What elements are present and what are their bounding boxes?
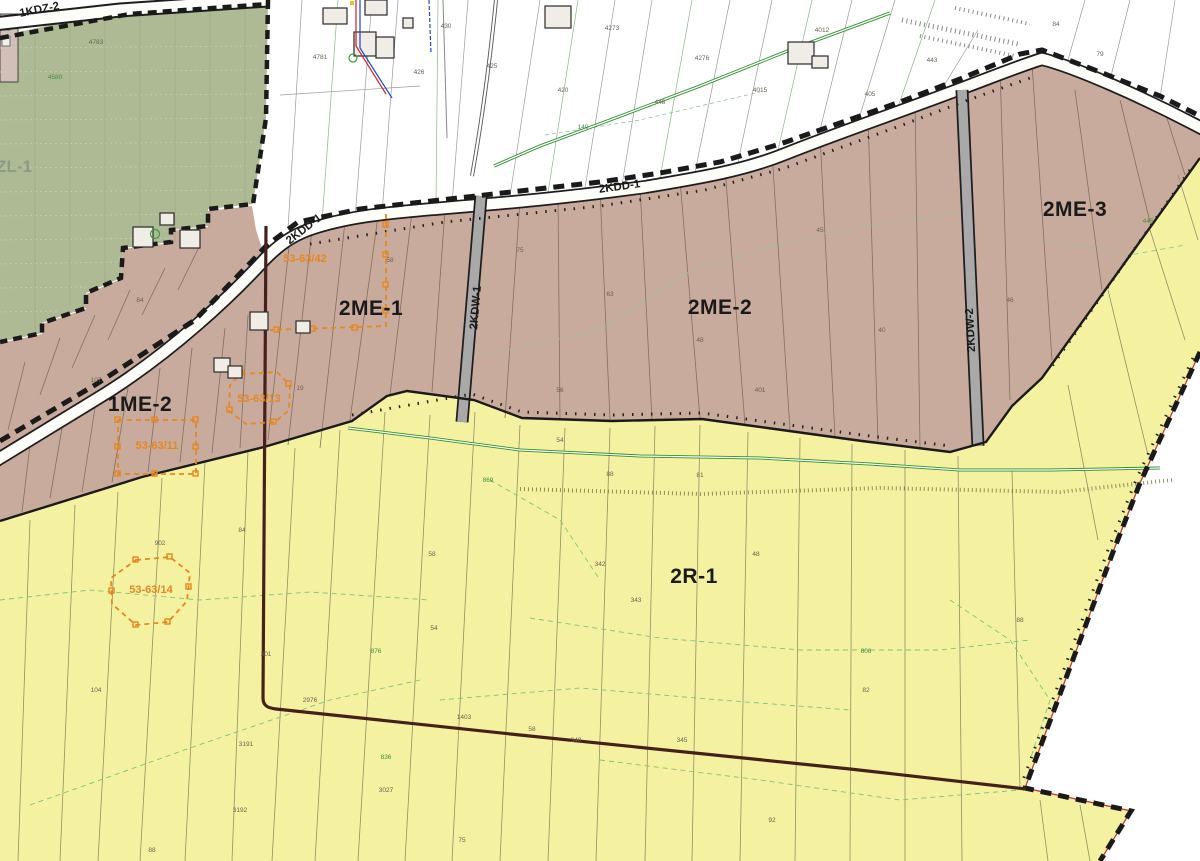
heritage-label-53-63-14: 53-63/14 [129, 584, 173, 596]
zoning-map-canvas: ZL-11ME-22ME-12ME-22ME-32R-11KDZ-22KDD-1… [0, 0, 1200, 861]
parcel-number: 48 [752, 551, 760, 558]
parcel-number: 107 [91, 377, 102, 384]
parcel-number: 445 [1143, 218, 1154, 225]
parcel-number: 340 [571, 737, 582, 744]
parcel-number: 405 [865, 91, 876, 98]
parcel-number: 84 [1052, 21, 1060, 28]
parcel-number: 3027 [379, 787, 394, 794]
parcel-number: 56 [556, 387, 564, 394]
parcel-number: 342 [595, 561, 606, 568]
parcel-number: 81 [696, 472, 704, 479]
parcel-number: 58 [428, 551, 436, 558]
parcel-number: 84 [238, 527, 246, 534]
parcel-number: 82 [862, 687, 870, 694]
parcel-number: 806 [861, 648, 872, 655]
tree-symbol [349, 54, 357, 62]
parcel-number: 88 [148, 847, 156, 854]
parcel-number: 1403 [457, 714, 472, 721]
parcel-number: 345 [677, 737, 688, 744]
parcel-number: 88 [1016, 617, 1024, 624]
parcel-number: 4273 [605, 25, 620, 32]
zone-label-2r-1: 2R-1 [670, 565, 718, 588]
parcel-number: 2976 [303, 697, 318, 704]
scarp-hatch [902, 8, 1030, 56]
parcel-number: 54 [430, 625, 438, 632]
parcel-number: 869 [483, 477, 494, 484]
parcel-number: 19 [296, 385, 304, 392]
parcel-number: 836 [381, 754, 392, 761]
parcel-number: 425 [487, 63, 498, 70]
parcel-number: 46 [1006, 297, 1014, 304]
heritage-label-53-63-42: 53-63/42 [283, 253, 326, 265]
parcel-number: 63 [606, 291, 614, 298]
parcel-number: 54 [556, 437, 564, 444]
parcel-number: 448 [655, 99, 666, 106]
parcel-number: 902 [155, 540, 166, 547]
parcel-number: 58 [386, 257, 394, 264]
parcel-number: 45 [816, 227, 824, 234]
parcel-number: 75 [516, 247, 524, 254]
heritage-label-53-63-13: 53-63/13 [237, 393, 280, 405]
parcel-number: 301 [261, 651, 272, 658]
parcel-number: 84 [136, 297, 144, 304]
parcel-number: 430 [441, 23, 452, 30]
zone-label-2me-1: 2ME-1 [339, 297, 403, 320]
parcel-number: 3192 [233, 807, 248, 814]
parcel-number: 443 [927, 57, 938, 64]
zoning-map: ZL-11ME-22ME-12ME-22ME-32R-11KDZ-22KDD-1… [0, 0, 1200, 861]
parcel-number: 48 [696, 337, 704, 344]
parcel-number: 4276 [695, 55, 710, 62]
parcel-number: 104 [91, 687, 102, 694]
zone-label-2me-2: 2ME-2 [688, 296, 752, 319]
zone-label-1me-2: 1ME-2 [108, 393, 172, 416]
utility-blue [429, 0, 431, 54]
parcel-number: 401 [755, 387, 766, 394]
parcel-number: 420 [558, 87, 569, 94]
utility-yellow-node [350, 1, 354, 5]
parcel-number: 140 [578, 124, 589, 131]
parcel-number: 79 [1096, 51, 1104, 58]
zone-label-zl-1: ZL-1 [0, 157, 32, 176]
parcel-number: 343 [631, 597, 642, 604]
parcel-number: 4580 [48, 74, 63, 81]
parcel-number: 58 [528, 726, 536, 733]
zone-label-2me-3: 2ME-3 [1043, 198, 1107, 221]
parcel-number: 876 [371, 648, 382, 655]
parcel-number: 4012 [815, 27, 830, 34]
heritage-label-53-63-11: 53-63/11 [136, 440, 179, 452]
parcel-number: 40 [878, 327, 886, 334]
parcel-number: 3191 [239, 741, 254, 748]
parcel-number: 4015 [753, 87, 768, 94]
parcel-number: 92 [768, 817, 776, 824]
road-label-2kdw-2: 2KDW-2 [964, 308, 978, 352]
parcel-number: 4781 [313, 54, 328, 61]
parcel-number: 88 [606, 471, 614, 478]
parcel-number: 4783 [89, 39, 104, 46]
parcel-number: 426 [414, 69, 425, 76]
parcel-number: 75 [458, 837, 466, 844]
